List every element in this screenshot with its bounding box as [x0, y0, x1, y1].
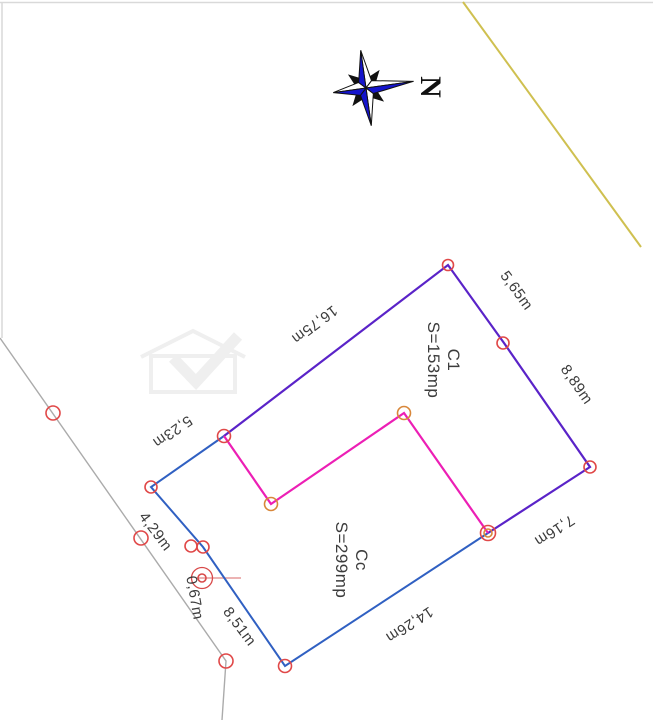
- dimension-label-7-16m: 7,16m: [531, 511, 577, 549]
- north-label: N: [414, 76, 447, 98]
- plan-drawing: N 16,75m 5,65m 8,89m 7,16m 14,26m 8,51m …: [0, 0, 653, 720]
- dimension-label-14-26m: 14,26m: [382, 603, 436, 646]
- compass-blue-halves: [328, 44, 419, 131]
- cadastral-plan-canvas: N 16,75m 5,65m 8,89m 7,16m 14,26m 8,51m …: [0, 0, 653, 720]
- utility-line: [463, 2, 641, 247]
- courtyard-area: S=299mp: [332, 522, 351, 599]
- dimension-labels: 16,75m 5,65m 8,89m 7,16m 14,26m 8,51m 4,…: [135, 268, 596, 650]
- dimension-label-8-51m: 8,51m: [219, 604, 259, 650]
- vertex-marker: [185, 540, 197, 552]
- building-outline: [224, 265, 590, 533]
- building-area: S=153mp: [424, 322, 443, 399]
- dimension-label-5-65m: 5,65m: [497, 268, 537, 314]
- watermark-checkmark-icon: [173, 336, 238, 382]
- inner-courtyard-boundary: [224, 413, 488, 533]
- inner-vertex-markers: [265, 407, 493, 538]
- area-label-building: C1 S=153mp: [424, 322, 463, 399]
- compass-rose: [328, 44, 419, 131]
- watermark-logo: [141, 331, 245, 392]
- road-boundary-line: [0, 338, 226, 720]
- building-name: C1: [444, 349, 463, 372]
- area-label-courtyard: Cc S=299mp: [332, 522, 371, 599]
- dimension-label-8-89m: 8,89m: [557, 362, 596, 408]
- courtyard-name: Cc: [352, 549, 371, 571]
- frame-border: [0, 3, 653, 339]
- dimension-label-16-75m: 16,75m: [288, 302, 341, 348]
- dimension-label-5-23m: 5,23m: [149, 412, 195, 451]
